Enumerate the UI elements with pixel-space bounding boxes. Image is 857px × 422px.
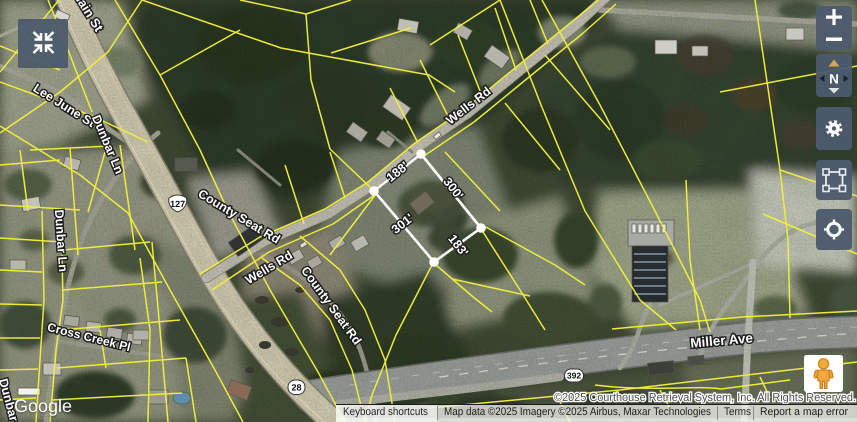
svg-text:N: N: [829, 72, 839, 87]
svg-text:Keyboard shortcuts: Keyboard shortcuts: [343, 406, 428, 418]
svg-text:28: 28: [291, 383, 301, 393]
svg-text:Report a map error: Report a map error: [760, 406, 848, 418]
svg-text:Map data ©2025 Imagery ©2025 A: Map data ©2025 Imagery ©2025 Airbus, Max…: [444, 406, 711, 418]
svg-text:127: 127: [170, 199, 185, 209]
svg-text:Terms: Terms: [724, 406, 751, 418]
svg-text:©2025 Courthouse Retrieval Sys: ©2025 Courthouse Retrieval System, Inc. …: [554, 392, 856, 404]
svg-text:Google: Google: [14, 396, 72, 416]
svg-text:392: 392: [567, 371, 581, 381]
